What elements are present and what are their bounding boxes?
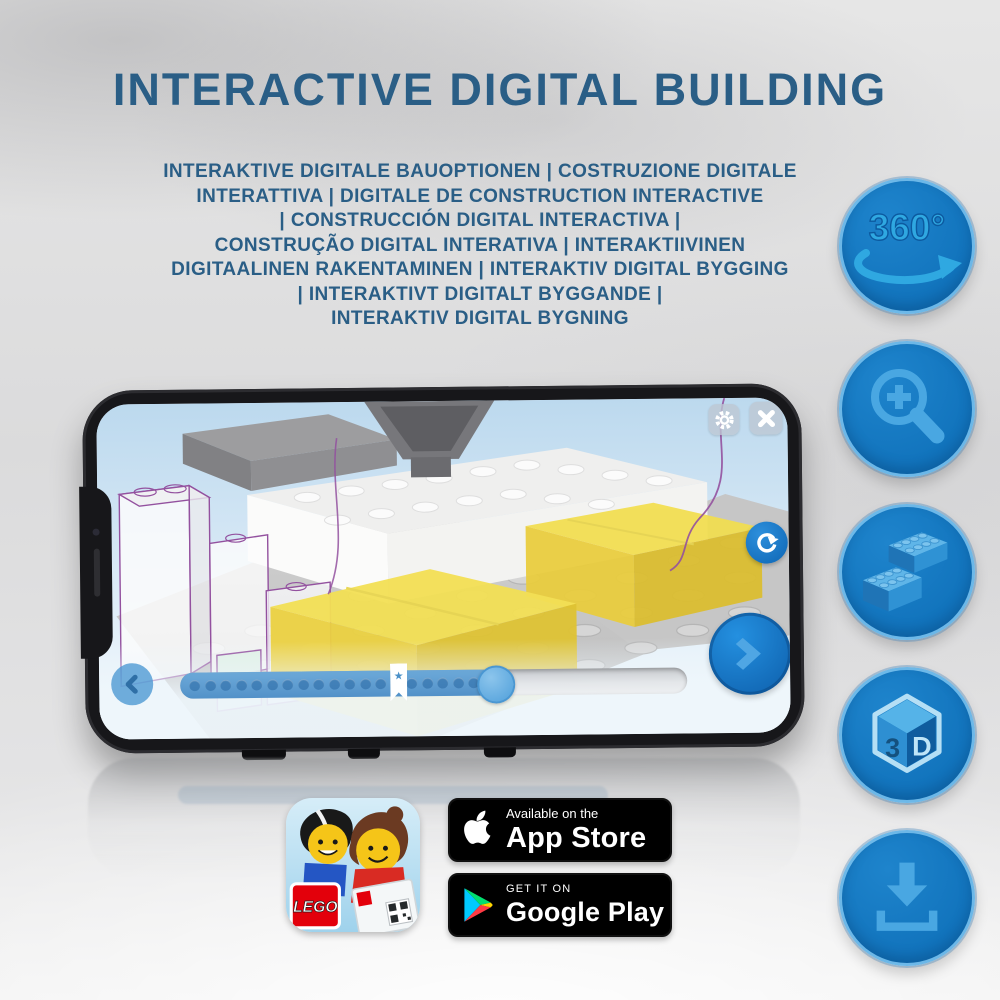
previous-step-button[interactable] — [111, 663, 153, 705]
apple-logo-icon — [450, 809, 506, 851]
gear-icon — [712, 407, 736, 431]
magnifier-plus-icon — [852, 354, 962, 464]
page-title: INTERACTIVE DIGITAL BUILDING — [0, 64, 1000, 116]
subtitle-multilingual: INTERAKTIVE DIGITALE BAUOPTIONEN | COSTR… — [130, 160, 830, 332]
camera-dot — [93, 528, 100, 535]
next-step-button[interactable] — [708, 612, 790, 695]
side-button — [484, 747, 516, 757]
app-screen — [96, 397, 790, 739]
chevron-left-icon — [119, 671, 145, 697]
download-arrow-icon — [853, 844, 961, 952]
360-degrees-label: 360° — [842, 207, 972, 249]
speaker-slit — [94, 548, 101, 596]
lego-bricks-icon — [848, 516, 966, 628]
cube-digit: 3 — [885, 733, 900, 763]
chevron-right-icon — [727, 631, 773, 677]
google-play-logo-icon — [450, 887, 506, 923]
close-button[interactable] — [749, 401, 782, 434]
lego-app-marketing-image: INTERACTIVE DIGITAL BUILDING INTERAKTIVE… — [0, 0, 1000, 1000]
feature-icon-zoom — [839, 341, 975, 477]
subtitle-line: INTERATTIVA | DIGITALE DE CONSTRUCTION I… — [130, 185, 830, 210]
phone-notch — [79, 486, 113, 658]
feature-icon-360: 360° — [839, 178, 975, 314]
subtitle-line: DIGITAALINEN RAKENTAMINEN | INTERAKTIV D… — [130, 258, 830, 283]
rotate-icon — [754, 529, 780, 555]
360-rotation-arrow-icon — [850, 249, 964, 289]
subtitle-line: INTERAKTIV DIGITAL BYGNING — [130, 307, 830, 332]
app-store-badge[interactable]: Available on the App Store — [448, 798, 672, 862]
app-store-name: App Store — [506, 823, 646, 853]
settings-button[interactable] — [708, 404, 739, 435]
smartphone — [82, 383, 805, 754]
app-store-tagline: Available on the — [506, 807, 646, 821]
feature-icon-3d: 3 D — [839, 667, 975, 803]
feature-icon-download — [839, 830, 975, 966]
feature-icon-bricks — [839, 504, 975, 640]
build-progress-bar[interactable] — [180, 667, 687, 698]
3d-cube-icon: 3 D — [853, 681, 961, 789]
subtitle-line: INTERAKTIVE DIGITALE BAUOPTIONEN | COSTR… — [130, 160, 830, 185]
lego-logo-text: LEGO — [293, 899, 337, 916]
google-play-name: Google Play — [506, 898, 664, 926]
subtitle-line: | CONSTRUCCIÓN DIGITAL INTERACTIVA | — [130, 209, 830, 234]
cube-letter: D — [912, 731, 932, 761]
subtitle-line: CONSTRUÇÃO DIGITAL INTERATIVA | INTERAKT… — [130, 234, 830, 259]
subtitle-line: | INTERAKTIVT DIGITALT BYGGANDE | — [130, 283, 830, 308]
close-icon — [756, 408, 776, 428]
lego-app-icon: LEGO — [286, 798, 420, 932]
feature-icon-column: 360° — [839, 178, 975, 993]
lego-app-artwork: LEGO — [286, 798, 420, 932]
phone-reflection — [88, 758, 800, 878]
google-play-badge[interactable]: GET IT ON Google Play — [448, 873, 672, 937]
rotate-model-button[interactable] — [746, 521, 788, 563]
google-play-tagline: GET IT ON — [506, 884, 664, 896]
